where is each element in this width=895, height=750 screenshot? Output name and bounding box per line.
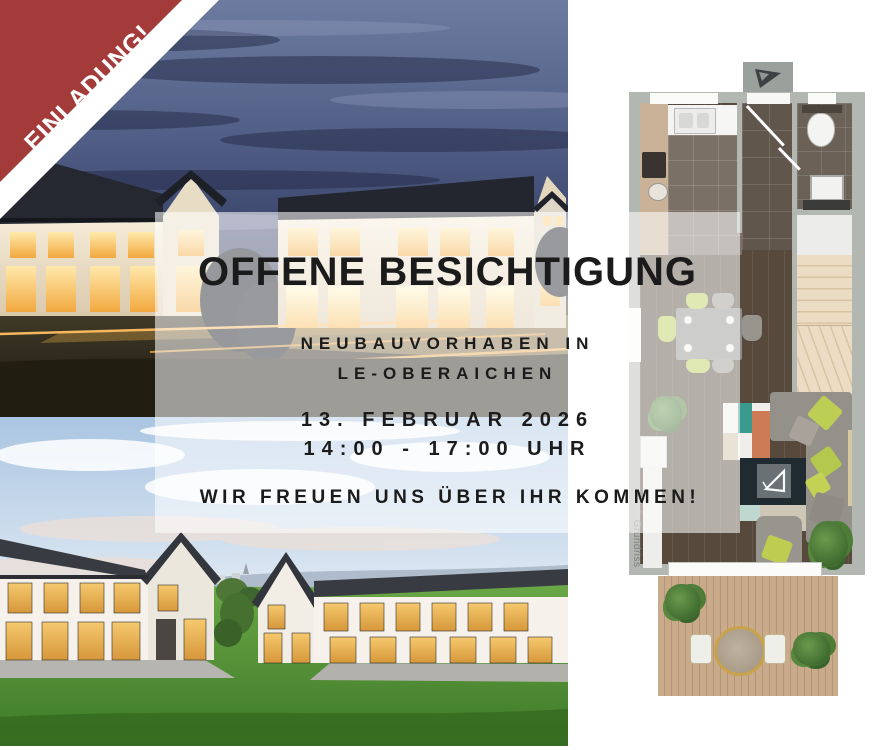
entrance-door-opening bbox=[747, 93, 790, 104]
location-line-2: LE-OBERAICHEN bbox=[155, 364, 740, 384]
north-arrow-icon bbox=[743, 62, 793, 94]
right-wall-curtain bbox=[848, 430, 852, 506]
closing-line: WIR FREUEN UNS ÜBER IHR KOMMEN! bbox=[125, 487, 775, 509]
hallway-floor bbox=[742, 103, 797, 250]
armchair bbox=[756, 516, 802, 568]
armchair-pillow-lime bbox=[761, 534, 794, 565]
terrace-deck bbox=[658, 576, 838, 696]
kitchen-window bbox=[650, 93, 718, 104]
toilet bbox=[807, 113, 835, 147]
tv-board-teal-box bbox=[738, 403, 752, 433]
toilet-cistern bbox=[802, 105, 842, 113]
tv-board-orange-box bbox=[752, 411, 770, 459]
kitchen-plate bbox=[648, 183, 668, 201]
terrace-plant bbox=[793, 632, 831, 666]
terrace-chair bbox=[690, 634, 712, 664]
event-time: 14:00 - 17:00 UHR bbox=[155, 438, 740, 461]
hall-bathroom-wall bbox=[792, 103, 797, 215]
staircase-winder bbox=[797, 325, 852, 398]
washbasin bbox=[810, 175, 844, 201]
flyer-canvas: MeinGrundriss OFFENE BESICHTIGUNG NEUBAU… bbox=[0, 0, 895, 750]
kitchen-sink bbox=[674, 108, 716, 134]
location-line-1: NEUBAUVORHABEN IN bbox=[155, 334, 740, 354]
event-date: 13. FEBRUAR 2026 bbox=[155, 409, 740, 432]
bathroom-window bbox=[808, 93, 836, 104]
bathroom-shelf bbox=[803, 200, 850, 210]
living-plant bbox=[810, 521, 848, 567]
kitchen-counter bbox=[668, 105, 742, 135]
staircase-upper bbox=[797, 255, 852, 325]
terrace-chair bbox=[764, 634, 786, 664]
dining-chair bbox=[742, 315, 762, 341]
headline: OFFENE BESICHTIGUNG bbox=[155, 250, 740, 295]
terrace-plant bbox=[665, 584, 701, 620]
closet bbox=[797, 215, 852, 255]
stove-appliance bbox=[642, 152, 666, 178]
entrance-porch bbox=[743, 62, 793, 94]
terrace-sliding-door bbox=[668, 562, 822, 577]
terrace-table bbox=[714, 626, 766, 676]
